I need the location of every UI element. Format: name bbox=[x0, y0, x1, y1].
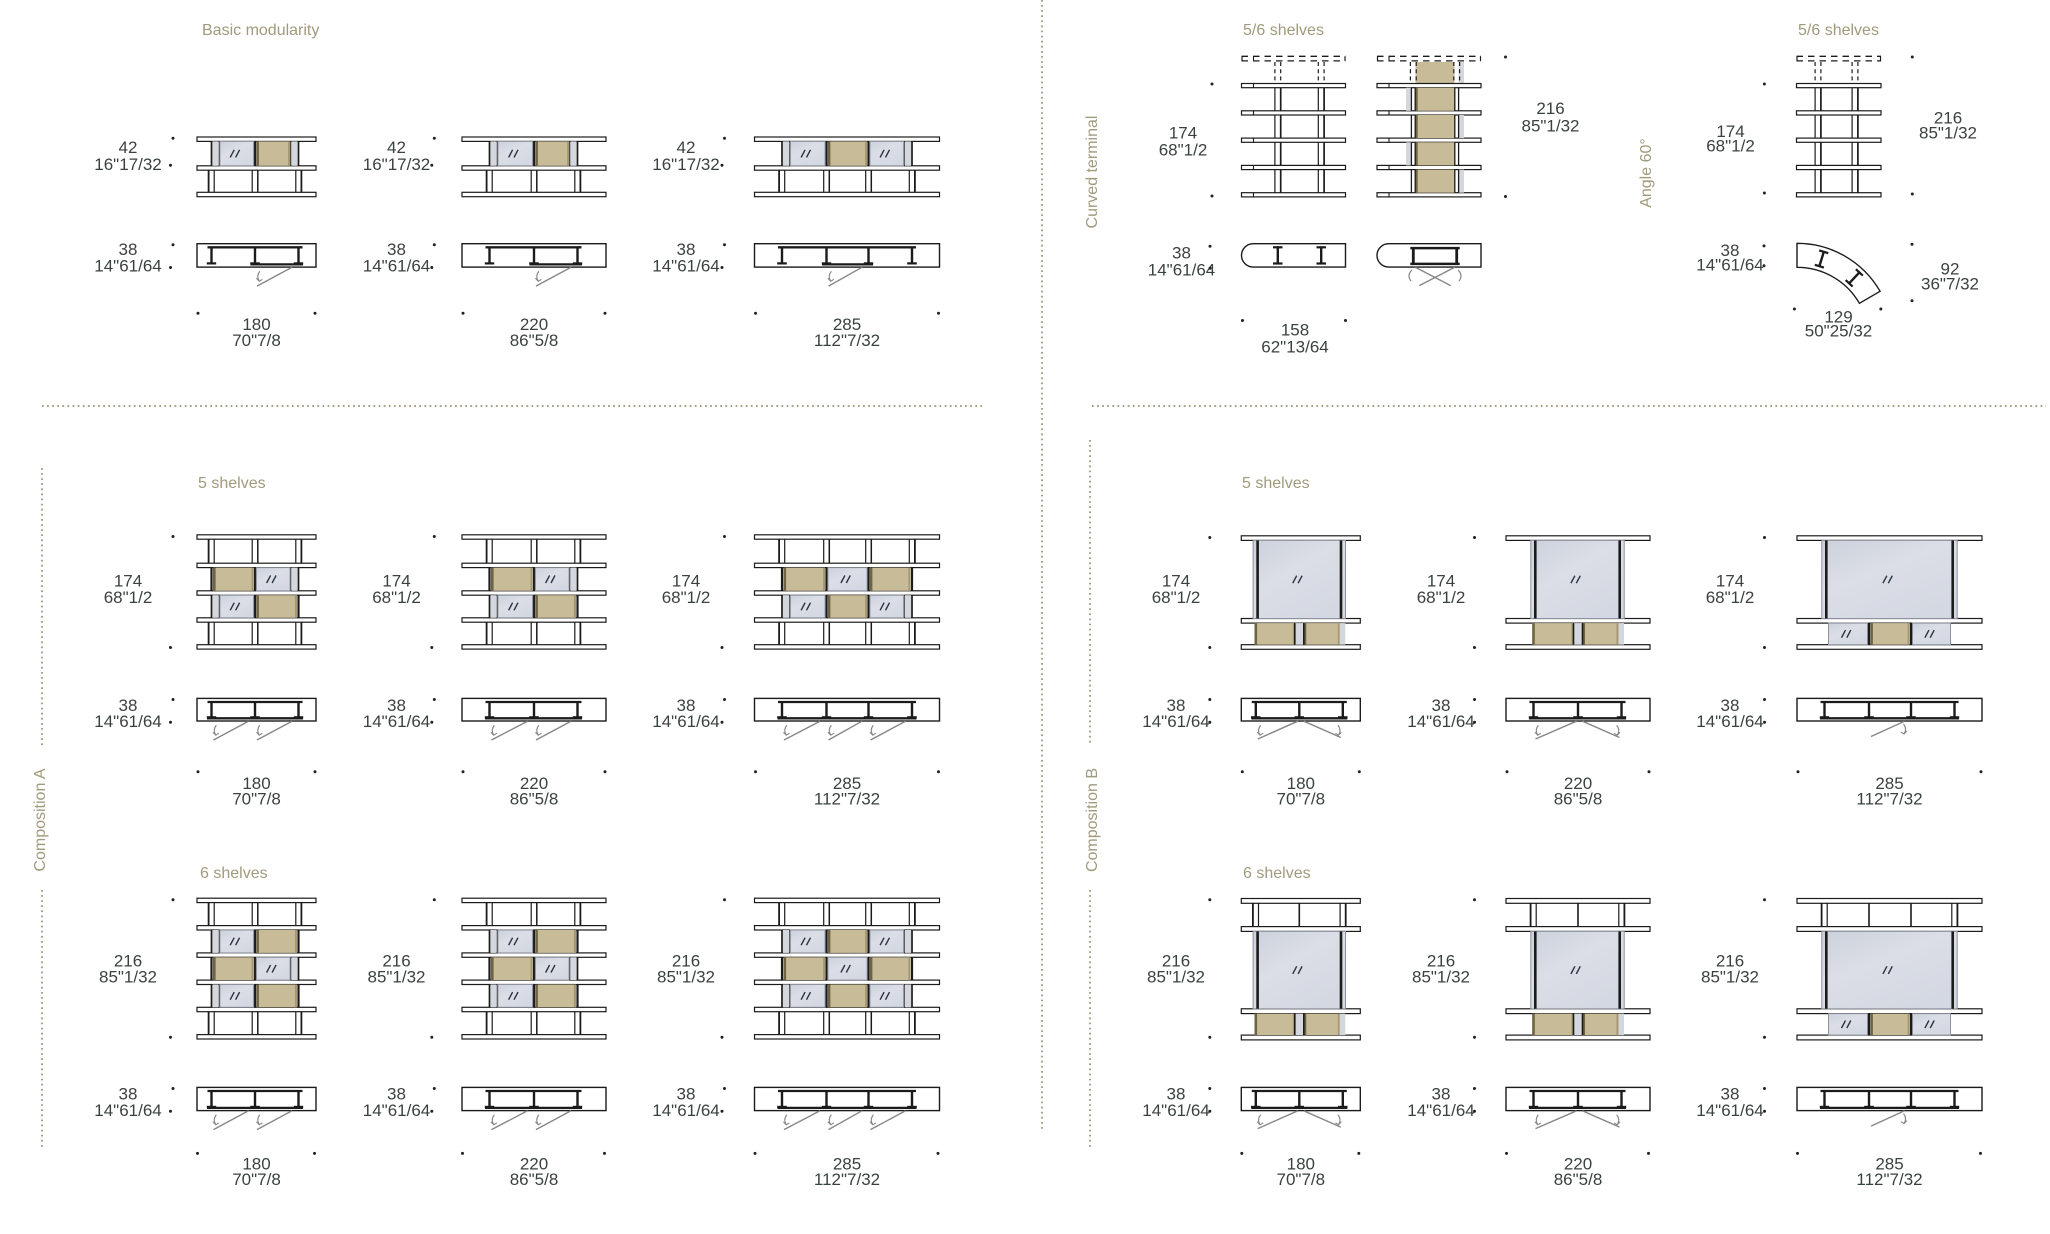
svg-text:85"1/32: 85"1/32 bbox=[1412, 968, 1470, 987]
svg-text:85"1/32: 85"1/32 bbox=[1521, 117, 1579, 136]
svg-text:14"61/64: 14"61/64 bbox=[652, 257, 720, 276]
svg-text:70"7/8: 70"7/8 bbox=[1277, 1170, 1326, 1189]
svg-text:62"13/64: 62"13/64 bbox=[1261, 338, 1329, 357]
svg-text:70"7/8: 70"7/8 bbox=[232, 790, 281, 809]
svg-text:5/6 shelves: 5/6 shelves bbox=[1243, 22, 1324, 39]
svg-text:70"7/8: 70"7/8 bbox=[232, 331, 281, 350]
svg-text:6 shelves: 6 shelves bbox=[1243, 865, 1311, 882]
svg-text:85"1/32: 85"1/32 bbox=[99, 968, 157, 987]
svg-text:Basic modularity: Basic modularity bbox=[202, 22, 319, 39]
svg-text:68"1/2: 68"1/2 bbox=[1152, 588, 1201, 607]
svg-text:5 shelves: 5 shelves bbox=[198, 475, 266, 492]
svg-text:86"5/8: 86"5/8 bbox=[1554, 1170, 1603, 1189]
svg-text:6 shelves: 6 shelves bbox=[200, 865, 268, 882]
svg-text:112"7/32: 112"7/32 bbox=[814, 1170, 880, 1189]
svg-text:16"17/32: 16"17/32 bbox=[94, 155, 162, 174]
svg-text:14"61/64: 14"61/64 bbox=[94, 257, 162, 276]
svg-text:85"1/32: 85"1/32 bbox=[1919, 124, 1977, 143]
svg-text:216: 216 bbox=[1536, 99, 1564, 118]
svg-text:Angle 60°: Angle 60° bbox=[1638, 138, 1655, 208]
svg-text:85"1/32: 85"1/32 bbox=[1701, 968, 1759, 987]
svg-text:85"1/32: 85"1/32 bbox=[1147, 968, 1205, 987]
svg-text:112"7/32: 112"7/32 bbox=[1856, 1170, 1922, 1189]
svg-text:16"17/32: 16"17/32 bbox=[652, 155, 720, 174]
svg-text:85"1/32: 85"1/32 bbox=[657, 968, 715, 987]
svg-text:68"1/2: 68"1/2 bbox=[372, 588, 421, 607]
svg-text:36"7/32: 36"7/32 bbox=[1921, 275, 1979, 294]
svg-text:Curved terminal: Curved terminal bbox=[1084, 116, 1101, 229]
svg-text:14"61/64: 14"61/64 bbox=[652, 1101, 720, 1120]
svg-text:14"61/64: 14"61/64 bbox=[363, 1101, 431, 1120]
svg-text:14"61/64: 14"61/64 bbox=[1696, 1101, 1764, 1120]
svg-text:14"61/64: 14"61/64 bbox=[1407, 1101, 1475, 1120]
svg-text:112"7/32: 112"7/32 bbox=[1856, 790, 1922, 809]
svg-text:14"61/64: 14"61/64 bbox=[652, 712, 720, 731]
svg-text:14"61/64: 14"61/64 bbox=[1148, 261, 1216, 280]
svg-text:14"61/64: 14"61/64 bbox=[363, 712, 431, 731]
svg-text:Composition B: Composition B bbox=[1084, 768, 1101, 872]
svg-text:14"61/64: 14"61/64 bbox=[363, 257, 431, 276]
svg-text:14"61/64: 14"61/64 bbox=[94, 1101, 162, 1120]
svg-text:14"61/64: 14"61/64 bbox=[1696, 256, 1764, 275]
svg-text:16"17/32: 16"17/32 bbox=[363, 155, 431, 174]
svg-text:14"61/64: 14"61/64 bbox=[1142, 712, 1210, 731]
svg-text:68"1/2: 68"1/2 bbox=[1706, 588, 1755, 607]
svg-text:50"25/32: 50"25/32 bbox=[1805, 322, 1873, 341]
svg-text:70"7/8: 70"7/8 bbox=[232, 1170, 281, 1189]
svg-text:5/6 shelves: 5/6 shelves bbox=[1798, 22, 1879, 39]
svg-text:14"61/64: 14"61/64 bbox=[1696, 712, 1764, 731]
svg-text:14"61/64: 14"61/64 bbox=[1142, 1101, 1210, 1120]
svg-text:68"1/2: 68"1/2 bbox=[1159, 141, 1208, 160]
svg-text:70"7/8: 70"7/8 bbox=[1277, 790, 1326, 809]
svg-text:14"61/64: 14"61/64 bbox=[1407, 712, 1475, 731]
svg-text:112"7/32: 112"7/32 bbox=[814, 790, 880, 809]
svg-text:86"5/8: 86"5/8 bbox=[510, 331, 559, 350]
svg-text:5 shelves: 5 shelves bbox=[1242, 475, 1310, 492]
svg-text:85"1/32: 85"1/32 bbox=[367, 968, 425, 987]
svg-text:68"1/2: 68"1/2 bbox=[104, 588, 153, 607]
svg-text:68"1/2: 68"1/2 bbox=[1417, 588, 1466, 607]
svg-text:112"7/32: 112"7/32 bbox=[814, 331, 880, 350]
svg-text:68"1/2: 68"1/2 bbox=[662, 588, 711, 607]
svg-text:14"61/64: 14"61/64 bbox=[94, 712, 162, 731]
svg-text:68"1/2: 68"1/2 bbox=[1706, 137, 1755, 156]
svg-text:86"5/8: 86"5/8 bbox=[510, 790, 559, 809]
svg-text:86"5/8: 86"5/8 bbox=[510, 1170, 559, 1189]
svg-text:86"5/8: 86"5/8 bbox=[1554, 790, 1603, 809]
svg-text:Composition A: Composition A bbox=[32, 768, 49, 871]
